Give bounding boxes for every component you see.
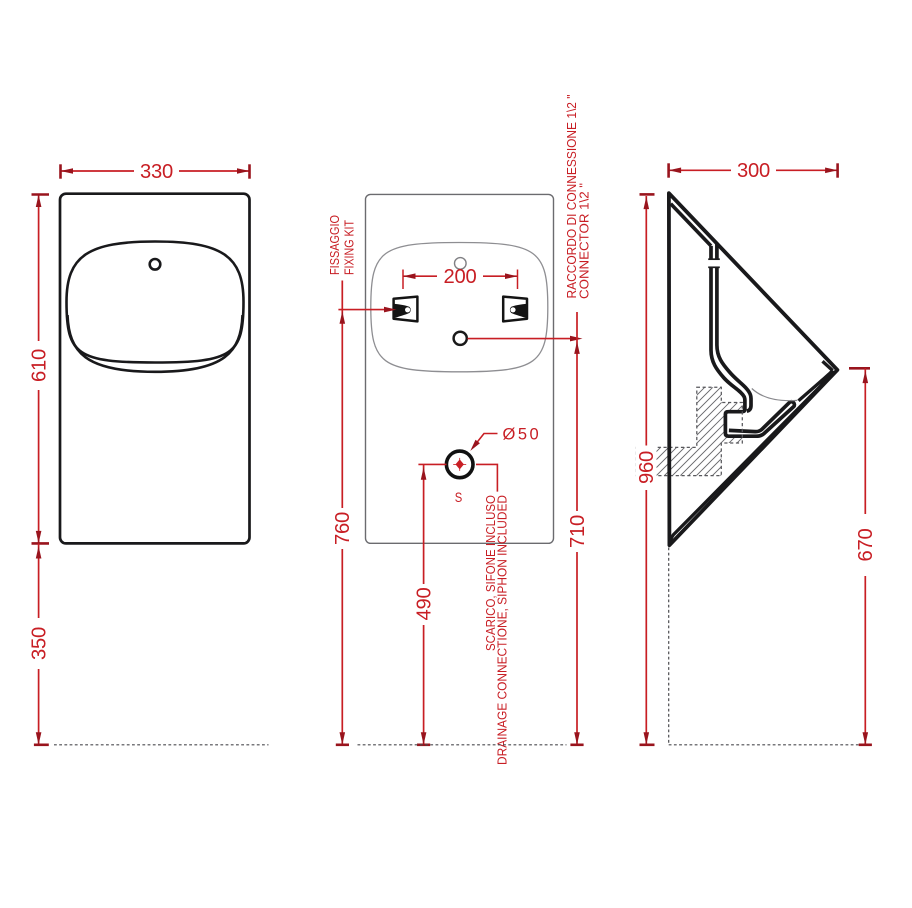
svg-text:350: 350: [28, 627, 50, 660]
svg-text:960: 960: [636, 451, 658, 484]
svg-text:330: 330: [140, 161, 173, 183]
svg-text:S: S: [455, 490, 463, 505]
svg-text:670: 670: [855, 528, 877, 561]
svg-text:610: 610: [28, 349, 50, 382]
svg-text:DRAINAGE CONNECTIONE, SIPHON I: DRAINAGE CONNECTIONE, SIPHON INCLUDED: [494, 495, 509, 765]
svg-text:760: 760: [332, 512, 354, 545]
svg-text:490: 490: [413, 587, 435, 620]
svg-text:Ø50: Ø50: [503, 426, 542, 444]
svg-text:FISSAGGIO: FISSAGGIO: [327, 215, 342, 275]
svg-text:FIXING KIT: FIXING KIT: [342, 220, 357, 275]
svg-text:300: 300: [737, 160, 770, 182]
svg-text:200: 200: [443, 266, 476, 288]
svg-text:710: 710: [567, 515, 589, 548]
svg-text:CONNECTOR 1\2 ": CONNECTOR 1\2 ": [577, 183, 592, 299]
